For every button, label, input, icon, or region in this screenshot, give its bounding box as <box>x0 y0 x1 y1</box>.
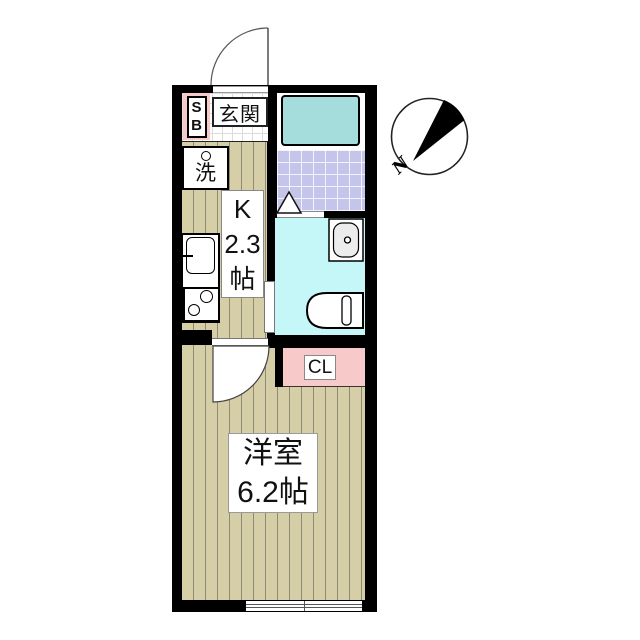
toilet-icon <box>307 293 363 328</box>
western-room-label: 洋室 6.2帖 <box>228 433 318 513</box>
shoe-box-inner: S B <box>187 96 207 138</box>
stove-burner-icon <box>200 290 213 303</box>
shoe-box: S B <box>183 93 210 140</box>
western-room-line2: 6.2帖 <box>237 473 309 512</box>
shoe-box-line2: B <box>191 117 202 135</box>
entrance-floor-edge <box>182 141 268 142</box>
kitchen-faucet-icon <box>174 255 193 257</box>
kitchen-label-line3: 帖 <box>229 262 255 297</box>
closet-label: CL <box>304 355 336 380</box>
bathtub <box>281 95 360 146</box>
entrance-label: 玄関 <box>212 97 268 127</box>
stove-burner-icon <box>188 304 200 316</box>
window-center-mullion <box>304 601 305 611</box>
toilet-closet-wall <box>267 335 365 348</box>
entrance-label-text: 玄関 <box>219 98 261 127</box>
kitchen-label-line2: 2.3 <box>224 227 260 262</box>
kitchen-label-line1: K <box>234 192 251 227</box>
western-room-door-icon <box>210 344 272 406</box>
window <box>245 600 363 612</box>
washer-label: 洗 <box>195 161 216 187</box>
western-room-line1: 洋室 <box>243 434 303 473</box>
floor-plan-canvas: CL S B 玄関 洗 K 2.3 帖 洋室 6.2帖 <box>0 0 640 640</box>
washer-faucet-icon <box>201 151 211 161</box>
kitchen-wall-stub <box>172 330 212 345</box>
wash-basin-icon <box>329 219 363 261</box>
kitchen-label: K 2.3 帖 <box>221 190 264 298</box>
toilet-fixtures <box>300 215 370 335</box>
closet-bottom-edge <box>283 386 365 387</box>
toilet-door <box>264 281 275 333</box>
entrance-door-icon <box>205 22 275 90</box>
compass: N <box>388 95 472 179</box>
shoe-box-line1: S <box>191 99 201 117</box>
closet-wall-post <box>275 348 283 387</box>
washing-machine: 洗 <box>182 146 229 190</box>
closet-label-text: CL <box>308 357 332 379</box>
